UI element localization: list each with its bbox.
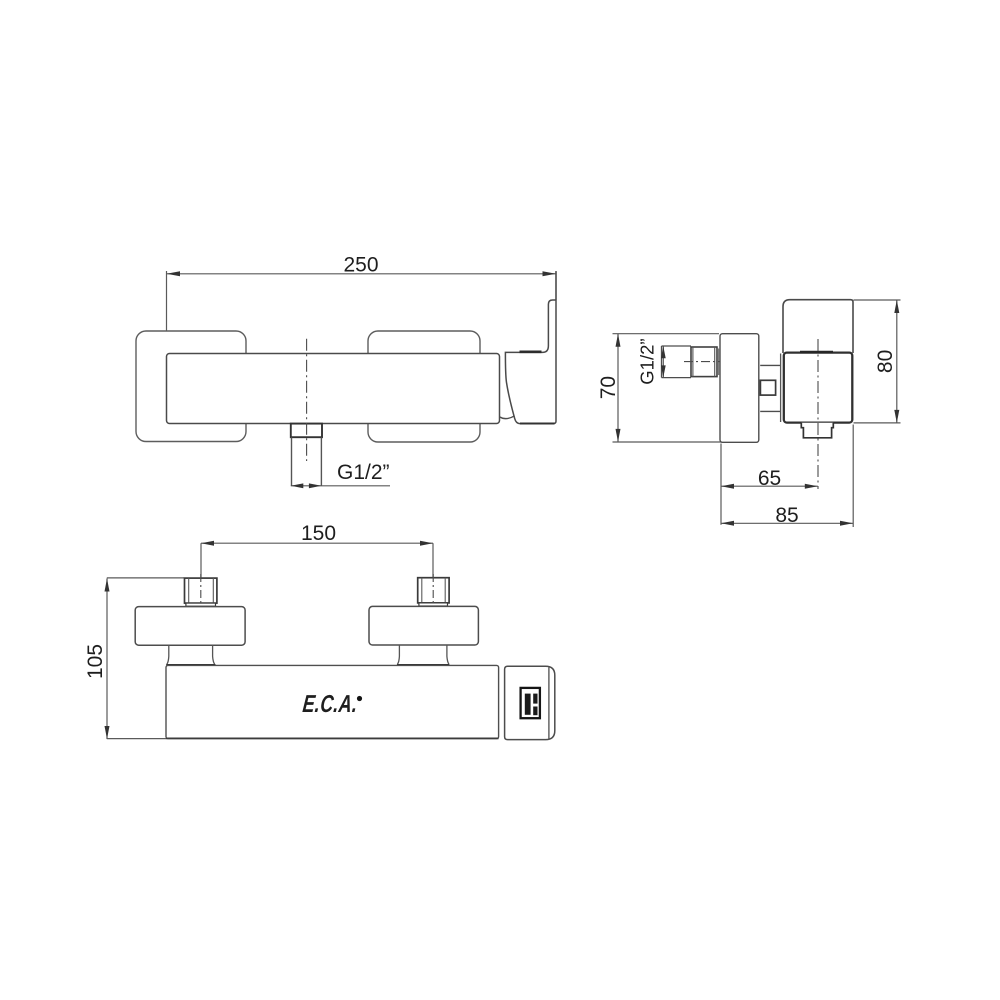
svg-text:85: 85 xyxy=(775,504,798,527)
svg-text:G1/2”: G1/2” xyxy=(337,461,390,484)
svg-text:250: 250 xyxy=(343,253,378,276)
svg-text:E.C.A.: E.C.A. xyxy=(301,689,359,717)
svg-text:65: 65 xyxy=(758,467,781,490)
svg-text:G1/2”: G1/2” xyxy=(637,338,658,384)
svg-text:150: 150 xyxy=(301,522,336,545)
svg-text:105: 105 xyxy=(84,644,107,679)
svg-text:80: 80 xyxy=(874,350,897,373)
svg-text:70: 70 xyxy=(597,376,620,399)
